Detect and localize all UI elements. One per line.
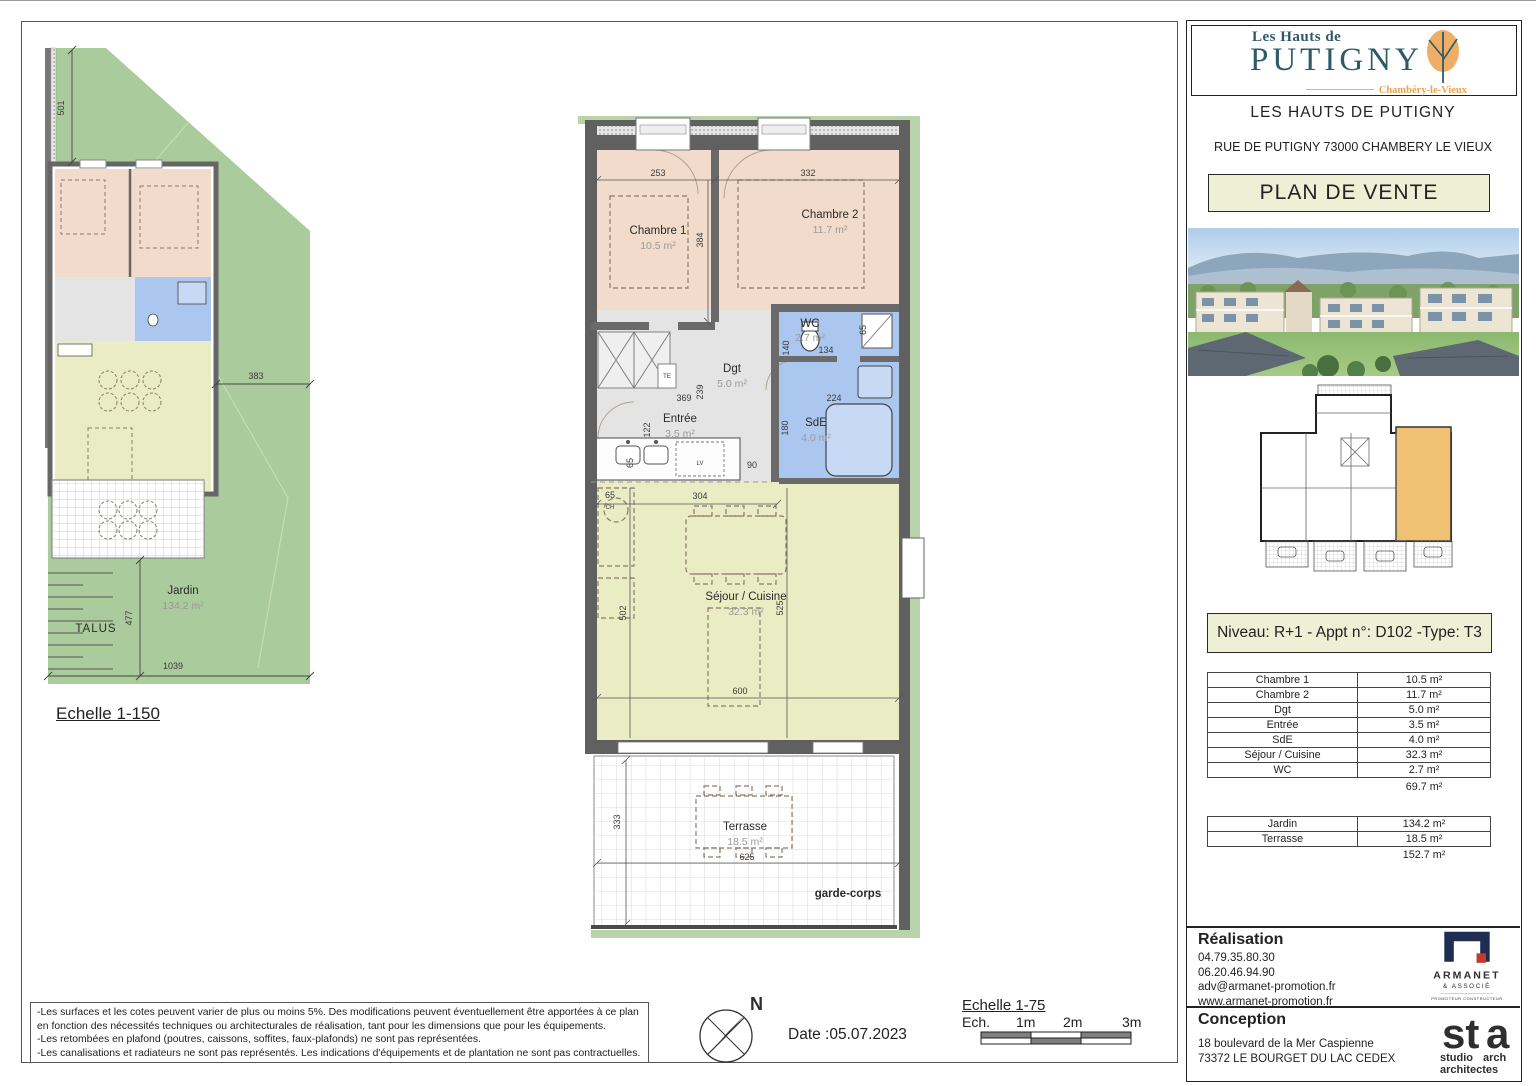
email: adv@armanet-promotion.fr bbox=[1198, 980, 1336, 995]
room-cell: Terrasse bbox=[1208, 832, 1358, 847]
room-cell: WC bbox=[1208, 763, 1358, 778]
scale-tick-1m: 1m bbox=[1016, 1014, 1035, 1030]
armanet-tagline: PROMOTEUR CONSTRUCTEUR bbox=[1431, 997, 1503, 1001]
table-row: Chambre 110.5 m² bbox=[1208, 673, 1491, 688]
sta-part1: st bbox=[1442, 1010, 1479, 1057]
sta-part2: a bbox=[1486, 1010, 1510, 1057]
scale-tick-2m: 2m bbox=[1063, 1014, 1082, 1030]
kitchen-counter bbox=[594, 438, 740, 480]
highlighted-apartment bbox=[1396, 427, 1451, 541]
logo-subtitle: Chambéry-le-Vieux bbox=[1379, 85, 1467, 96]
phone-2: 06.20.46.94.90 bbox=[1198, 966, 1336, 981]
exterior-table: Jardin134.2 m² Terrasse18.5 m² bbox=[1207, 816, 1491, 847]
plan-de-vente-sheet: 501 383 477 1039 Jardin 134.2 m² TALUS E… bbox=[0, 0, 1536, 1086]
sejour-area: 32.3 m² bbox=[728, 606, 764, 618]
garden-strip-right bbox=[910, 116, 920, 938]
building-key-plan bbox=[1246, 383, 1466, 588]
page-top-line bbox=[0, 0, 1536, 1]
site-terrace bbox=[52, 480, 204, 558]
disclaimer-line-1: -Les surfaces et les cotes peuvent varie… bbox=[37, 1006, 642, 1033]
phone-1: 04.79.35.80.30 bbox=[1198, 951, 1336, 966]
dim-65-ch: 65 bbox=[605, 490, 615, 500]
dgt-area: 5.0 m² bbox=[717, 378, 747, 390]
realisation-title: Réalisation bbox=[1198, 931, 1283, 949]
dim-122: 122 bbox=[642, 422, 652, 437]
area-cell: 4.0 m² bbox=[1357, 733, 1490, 748]
sde-label: SdE bbox=[805, 417, 827, 429]
terrasse-label: Terrasse bbox=[723, 821, 767, 833]
dim-90: 90 bbox=[747, 460, 757, 470]
dim-383: 383 bbox=[248, 371, 263, 381]
area-cell: 3.5 m² bbox=[1357, 718, 1490, 733]
sta-sub2: architectes bbox=[1440, 1064, 1498, 1076]
table-row: Jardin134.2 m² bbox=[1208, 817, 1491, 832]
entree-area: 3.5 m² bbox=[665, 428, 695, 440]
conception-address: 18 boulevard de la Mer Caspienne 73372 L… bbox=[1198, 1037, 1395, 1066]
doc-title: PLAN DE VENTE bbox=[1260, 181, 1439, 205]
dim-332: 332 bbox=[800, 168, 815, 178]
conception-address-2: 73372 LE BOURGET DU LAC CEDEX bbox=[1198, 1052, 1395, 1067]
date-label: Date :05.07.2023 bbox=[788, 1026, 907, 1044]
room-cell: Dgt bbox=[1208, 703, 1358, 718]
project-name: LES HAUTS DE PUTIGNY bbox=[1186, 104, 1520, 122]
dim-525: 525 bbox=[775, 600, 785, 615]
dim-65-kitchen: 65 bbox=[625, 458, 635, 468]
dim-224: 224 bbox=[826, 393, 841, 403]
sta-sub1a: studio bbox=[1440, 1052, 1473, 1064]
dim-253: 253 bbox=[650, 168, 665, 178]
dim-140: 140 bbox=[781, 340, 791, 355]
logo-box: Les Hauts de PUTIGNY Chambéry-le-Vieux bbox=[1191, 25, 1517, 96]
logo-brand: PUTIGNY bbox=[1250, 42, 1423, 79]
table-row: Entrée3.5 m² bbox=[1208, 718, 1491, 733]
site-apartment-block bbox=[50, 160, 216, 494]
dim-65-wc: 65 bbox=[858, 325, 868, 335]
label-lv: LV bbox=[697, 461, 704, 467]
dim-384: 384 bbox=[695, 232, 705, 247]
scale-title: Echelle 1-75 bbox=[962, 997, 1045, 1014]
compass-north-label: N bbox=[750, 994, 763, 1014]
logo-subtitle-row: Chambéry-le-Vieux bbox=[1242, 80, 1467, 98]
area-cell: 5.0 m² bbox=[1357, 703, 1490, 718]
room-cell: Séjour / Cuisine bbox=[1208, 748, 1358, 763]
dim-239: 239 bbox=[695, 384, 705, 399]
label-ch: CH bbox=[606, 505, 615, 511]
armanet-sub: & ASSOCIÉ bbox=[1443, 981, 1491, 990]
sde-area: 4.0 m² bbox=[801, 432, 831, 444]
area-cell: 11.7 m² bbox=[1357, 688, 1490, 703]
dim-180: 180 bbox=[780, 420, 790, 435]
site-plan-1-150: 501 383 477 1039 Jardin 134.2 m² TALUS bbox=[28, 28, 320, 728]
scale-bar bbox=[980, 1031, 1134, 1047]
area-cell: 32.3 m² bbox=[1357, 748, 1490, 763]
compass: N bbox=[694, 994, 794, 1066]
realisation-contact: 04.79.35.80.30 06.20.46.94.90 adv@armane… bbox=[1198, 951, 1336, 1009]
area-cell: 2.7 m² bbox=[1357, 763, 1490, 778]
jardin-area: 134.2 m² bbox=[162, 600, 204, 612]
apartment-info: Niveau: R+1 - Appt n°: D102 -Type: T3 bbox=[1217, 624, 1482, 642]
logo-subtitle-line bbox=[1306, 89, 1374, 90]
brand-logo: Les Hauts de PUTIGNY Chambéry-le-Vieux bbox=[1242, 28, 1482, 92]
disclaimer-box: -Les surfaces et les cotes peuvent varie… bbox=[30, 1002, 649, 1063]
area-cell: 134.2 m² bbox=[1357, 817, 1490, 832]
dim-304: 304 bbox=[692, 491, 707, 501]
area-cell: 18.5 m² bbox=[1357, 832, 1490, 847]
project-rendering-photo bbox=[1188, 228, 1519, 376]
room-cell: Chambre 1 bbox=[1208, 673, 1358, 688]
sta-sub1b: arch bbox=[1483, 1052, 1507, 1064]
site-plan-scale-label: Echelle 1-150 bbox=[56, 704, 160, 724]
chambre1-label: Chambre 1 bbox=[630, 225, 687, 237]
tree-icon bbox=[1424, 29, 1464, 85]
chambre2-area: 11.7 m² bbox=[813, 224, 848, 236]
scale-tick-3m: 3m bbox=[1122, 1014, 1141, 1030]
conception-address-1: 18 boulevard de la Mer Caspienne bbox=[1198, 1037, 1395, 1052]
dim-134: 134 bbox=[818, 345, 833, 355]
terrasse-area: 18.5 m² bbox=[727, 836, 763, 848]
entree-label: Entrée bbox=[663, 413, 697, 425]
dim-369: 369 bbox=[676, 393, 691, 403]
dim-501: 501 bbox=[56, 100, 66, 115]
chambre2-label: Chambre 2 bbox=[802, 209, 859, 221]
room-cell: Chambre 2 bbox=[1208, 688, 1358, 703]
sta-logo: st a studio arch architectes bbox=[1428, 1008, 1520, 1078]
armanet-name: ARMANET bbox=[1433, 970, 1501, 982]
room-cell: Jardin bbox=[1208, 817, 1358, 832]
dim-333: 333 bbox=[612, 814, 622, 829]
room-cell: Entrée bbox=[1208, 718, 1358, 733]
dim-502: 502 bbox=[618, 605, 628, 620]
wc-label: WC bbox=[800, 318, 819, 330]
jardin-label: Jardin bbox=[167, 585, 198, 597]
chambre1-area: 10.5 m² bbox=[640, 240, 676, 252]
dim-1039: 1039 bbox=[163, 661, 183, 671]
disclaimer-line-3: -Les canalisations et radiateurs ne sont… bbox=[37, 1047, 642, 1061]
conception-title: Conception bbox=[1198, 1011, 1286, 1029]
main-floor-plan: Chambre 1 10.5 m² Chambre 2 11.7 m² WC 2… bbox=[558, 108, 930, 950]
area-total: 69.7 m² bbox=[1357, 781, 1491, 793]
armanet-logo: ARMANET & ASSOCIÉ PROMOTEUR CONSTRUCTEUR bbox=[1428, 928, 1506, 1004]
room-cell: SdE bbox=[1208, 733, 1358, 748]
wc-area: 2.7 m² bbox=[795, 332, 825, 344]
table-row: WC2.7 m² bbox=[1208, 763, 1491, 778]
table-row: Dgt5.0 m² bbox=[1208, 703, 1491, 718]
dim-600: 600 bbox=[732, 686, 747, 696]
disclaimer-line-2: -Les retombées en plafond (poutres, cais… bbox=[37, 1033, 642, 1047]
talus-label: TALUS bbox=[75, 623, 116, 635]
dim-477: 477 bbox=[124, 610, 134, 625]
project-address: RUE DE PUTIGNY 73000 CHAMBERY LE VIEUX bbox=[1186, 140, 1520, 154]
label-te: TE bbox=[663, 374, 671, 380]
scale-tick-ech: Ech. bbox=[962, 1014, 990, 1030]
apartment-info-box: Niveau: R+1 - Appt n°: D102 -Type: T3 bbox=[1207, 613, 1492, 653]
exterior-total: 152.7 m² bbox=[1357, 849, 1491, 861]
dim-625: 625 bbox=[739, 852, 754, 862]
table-row: Séjour / Cuisine32.3 m² bbox=[1208, 748, 1491, 763]
dgt-label: Dgt bbox=[723, 363, 742, 375]
area-cell: 10.5 m² bbox=[1357, 673, 1490, 688]
area-table: Chambre 110.5 m² Chambre 211.7 m² Dgt5.0… bbox=[1207, 672, 1491, 778]
garde-corps-label: garde-corps bbox=[815, 888, 881, 900]
table-row: SdE4.0 m² bbox=[1208, 733, 1491, 748]
table-row: Terrasse18.5 m² bbox=[1208, 832, 1491, 847]
table-row: Chambre 211.7 m² bbox=[1208, 688, 1491, 703]
doc-title-box: PLAN DE VENTE bbox=[1208, 174, 1490, 212]
